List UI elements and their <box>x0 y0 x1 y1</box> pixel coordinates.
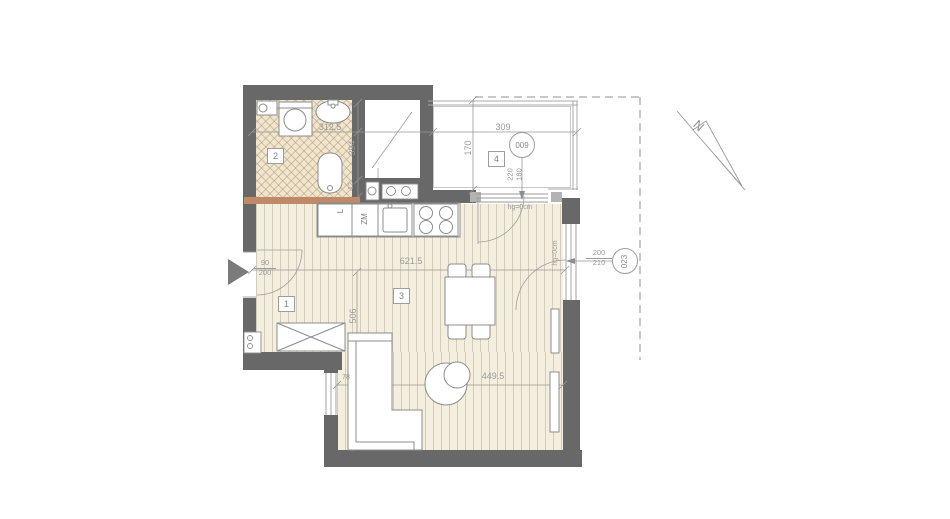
dishwasher-label: ZM <box>360 206 370 232</box>
wardrobe <box>277 323 345 351</box>
dim-window-78: 78 <box>337 374 355 382</box>
balcony-door-size: 220 180 <box>507 161 524 189</box>
terrace-door-size: 200 210 <box>586 249 612 267</box>
dim-balcony-width: 309 <box>481 122 525 132</box>
dim-living-width: 621.5 <box>389 256 433 266</box>
terrace-id-tag: 023 <box>612 248 638 274</box>
dining-set <box>445 264 495 339</box>
void-diagonal <box>372 112 412 178</box>
entry-door-height: 200 <box>254 269 276 278</box>
stove <box>414 204 458 236</box>
corner-cabinet <box>257 101 277 115</box>
utility-meters <box>366 182 418 200</box>
floor-plan-canvas: 2 1 3 4 312.5 394 12 309 170 621.5 449.5… <box>0 0 950 519</box>
terrace-id-text: 023 <box>620 254 629 267</box>
dim-living-width-lower: 449.5 <box>471 371 515 381</box>
sill-note-right: hg=0cm <box>552 236 560 270</box>
radiator <box>550 309 559 432</box>
balcony-door-height: 180 <box>515 161 524 189</box>
dim-living-depth: 506 <box>348 301 358 331</box>
room-label-balcony: 4 <box>488 151 505 167</box>
entry-arrow <box>228 259 249 285</box>
fridge-label: L <box>336 200 346 222</box>
room-label-hall: 1 <box>278 296 295 312</box>
sill-note-top: hg=0cm <box>497 204 543 212</box>
armchair <box>425 362 470 405</box>
plan-linework <box>0 0 950 519</box>
north-arrow <box>677 111 745 190</box>
dim-bathroom-width: 312.5 <box>308 122 352 132</box>
balcony-id-tag: 009 <box>509 132 535 158</box>
side-window-frame <box>326 373 336 415</box>
dim-wall-12: 12 <box>348 172 356 200</box>
dim-balcony-depth: 170 <box>463 133 473 163</box>
toilet <box>318 153 342 193</box>
balcony-door-frame <box>476 194 548 202</box>
room-label-bathroom: 2 <box>267 148 284 164</box>
kitchen-sink <box>383 204 407 232</box>
bathroom-sink <box>316 100 350 123</box>
room-label-living: 3 <box>393 288 410 304</box>
electrical-box <box>244 332 261 353</box>
balcony-railing <box>428 101 578 190</box>
dim-bathroom-depth: 394 <box>347 133 357 163</box>
entry-door-size: 90 200 <box>254 259 276 277</box>
terrace-door-height: 210 <box>586 259 612 268</box>
corner-sofa <box>348 333 422 450</box>
